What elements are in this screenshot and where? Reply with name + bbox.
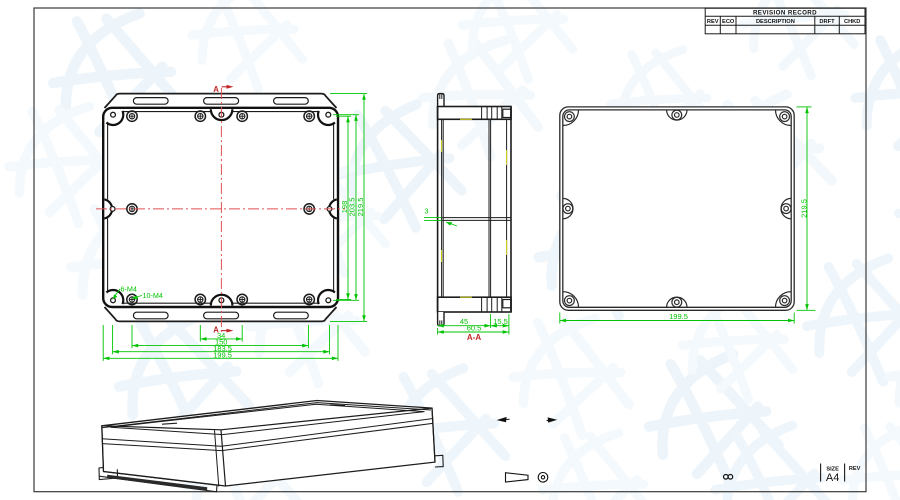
svg-text:60.5: 60.5: [467, 324, 482, 333]
svg-text:3: 3: [424, 207, 428, 216]
svg-text:REVISION RECORD: REVISION RECORD: [753, 10, 817, 17]
svg-text:219.5: 219.5: [356, 198, 365, 217]
svg-text:199.5: 199.5: [669, 312, 688, 321]
svg-text:199.5: 199.5: [213, 350, 232, 359]
svg-text:10-M4: 10-M4: [143, 291, 163, 300]
svg-text:DRFT: DRFT: [819, 19, 835, 25]
svg-text:A4: A4: [826, 472, 839, 484]
svg-text:CHKD: CHKD: [844, 19, 860, 25]
svg-text:ECO: ECO: [722, 19, 735, 25]
svg-text:15.5: 15.5: [493, 317, 508, 326]
svg-text:REV: REV: [707, 19, 719, 25]
svg-text:REV: REV: [849, 466, 861, 472]
svg-text:A-A: A-A: [467, 333, 481, 342]
svg-text:219.5: 219.5: [799, 199, 808, 218]
svg-text:A: A: [213, 85, 219, 94]
svg-text:DESCRIPTION: DESCRIPTION: [756, 19, 795, 25]
svg-text:6-M4: 6-M4: [121, 285, 137, 294]
